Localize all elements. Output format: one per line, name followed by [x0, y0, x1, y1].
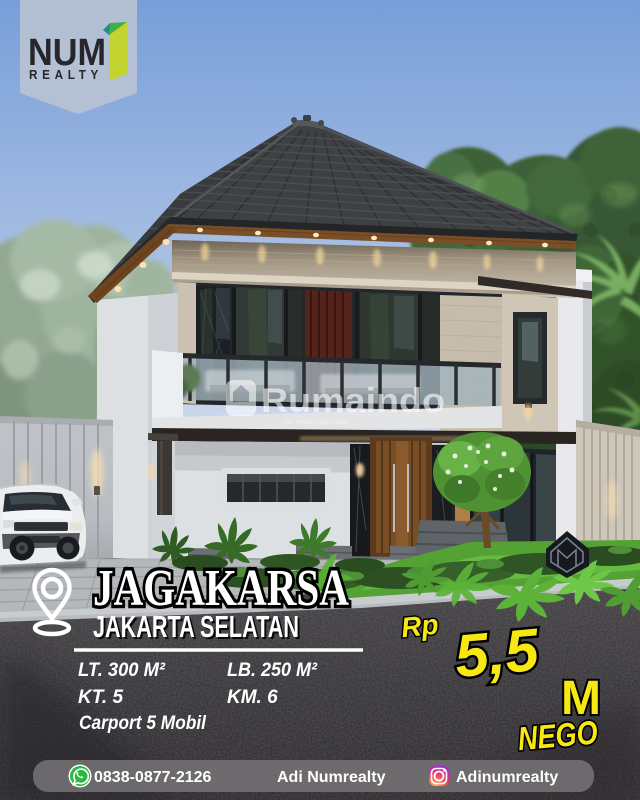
svg-text:LB. 250 M²: LB. 250 M²: [227, 660, 318, 681]
svg-text:KM. 6: KM. 6: [227, 687, 278, 708]
svg-text:JAKARTA SELATAN: JAKARTA SELATAN: [93, 609, 299, 644]
svg-text:5,5: 5,5: [452, 616, 543, 690]
svg-text:KT. 5: KT. 5: [78, 687, 123, 708]
svg-text:Cari Properti Impian Anda: Cari Properti Impian Anda: [284, 420, 348, 426]
svg-text:Adi Numrealty: Adi Numrealty: [277, 769, 386, 786]
svg-text:NEGO: NEGO: [516, 713, 599, 757]
svg-text:REALTY: REALTY: [29, 68, 103, 82]
svg-text:Rumaindo: Rumaindo: [261, 382, 445, 420]
svg-text:0838-0877-2126: 0838-0877-2126: [94, 769, 212, 786]
svg-text:Rp: Rp: [400, 609, 440, 644]
svg-text:LT. 300 M²: LT. 300 M²: [78, 660, 166, 681]
svg-text:Carport 5 Mobil: Carport 5 Mobil: [79, 713, 207, 734]
svg-text:Adinumrealty: Adinumrealty: [456, 769, 558, 786]
